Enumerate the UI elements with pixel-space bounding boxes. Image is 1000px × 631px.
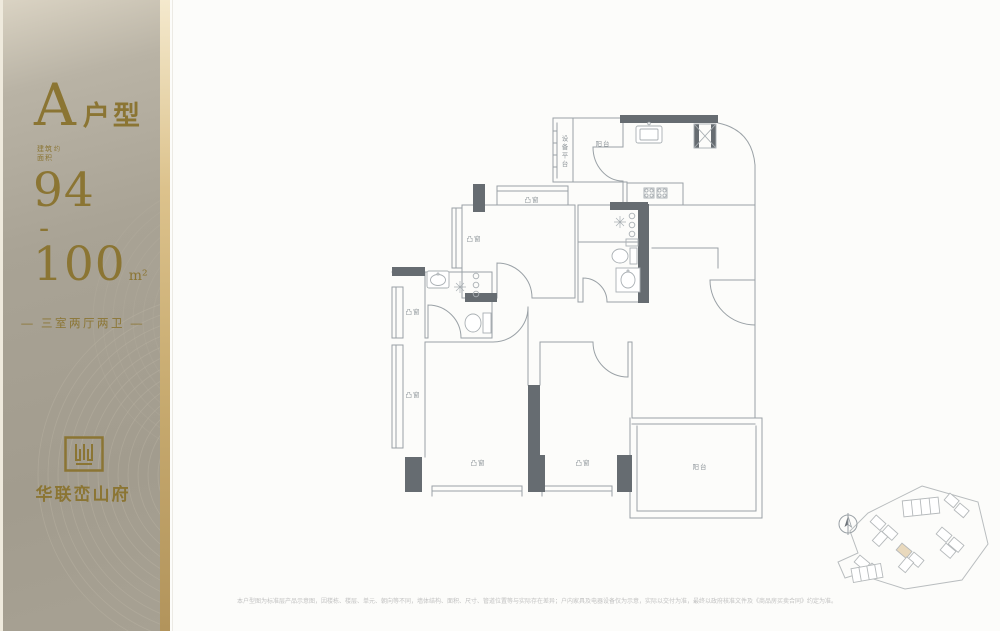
- kitchen-sink: [636, 126, 662, 143]
- plumbing-points: [473, 273, 479, 297]
- master-bath-sink: [427, 271, 449, 288]
- area-label-approx: 约: [54, 147, 61, 153]
- structural-walls: [392, 115, 718, 492]
- unit-suffix: 户型: [83, 103, 143, 130]
- brand-logo-icon: [64, 436, 104, 474]
- divider-line: [172, 0, 173, 631]
- room-label: 凸窗: [467, 233, 482, 243]
- floorplan-poster: A 户型 建筑约 面积 94 - 100 m² — 三室两厅两卫 — 华联峦山府: [0, 0, 1000, 631]
- shower-icon: [454, 281, 466, 293]
- area-from: 94: [33, 167, 95, 214]
- compass-icon: [839, 513, 857, 535]
- bathroom-sink: [616, 268, 640, 292]
- area-label: 建筑约 面积: [37, 146, 61, 163]
- disclaimer-text: 本户型图为标准层产品示意图，因楼栋、楼层、单元、朝向等不同，墙体结构、面积、尺寸…: [237, 596, 837, 605]
- master-toilet: [465, 313, 491, 333]
- shower-icon: [614, 216, 626, 228]
- area-label-line1: 建筑: [37, 146, 53, 153]
- area-unit: m²: [129, 269, 148, 283]
- toilet: [612, 248, 637, 264]
- area-to-row: 100 m²: [33, 241, 148, 288]
- site-plan: [838, 486, 988, 589]
- unit-letter: A: [34, 76, 76, 134]
- room-label: 凸窗: [471, 457, 486, 467]
- unit-title: A 户型: [34, 76, 143, 134]
- brand-name: 华联峦山府: [3, 480, 163, 505]
- room-label: 阳台: [693, 461, 708, 471]
- room-label: 阳台: [596, 138, 611, 148]
- room-label: 凸窗: [406, 389, 421, 399]
- area-label-line2: 面积: [37, 155, 61, 164]
- room-label: 凸窗: [576, 457, 591, 467]
- sidebar-panel: A 户型 建筑约 面积 94 - 100 m² — 三室两厅两卫 — 华联峦山府: [0, 0, 160, 631]
- gold-divider-strip: [160, 0, 170, 631]
- room-label: 凸窗: [525, 194, 540, 204]
- room-label: 凸窗: [406, 306, 421, 316]
- laundry-points: [626, 213, 638, 246]
- shaft-box: [694, 124, 716, 148]
- room-label: 设备平台: [558, 135, 568, 169]
- room-layout-line: — 三室两厅两卫 —: [3, 315, 163, 331]
- area-to: 100: [33, 241, 126, 288]
- stove-burners: [644, 188, 667, 198]
